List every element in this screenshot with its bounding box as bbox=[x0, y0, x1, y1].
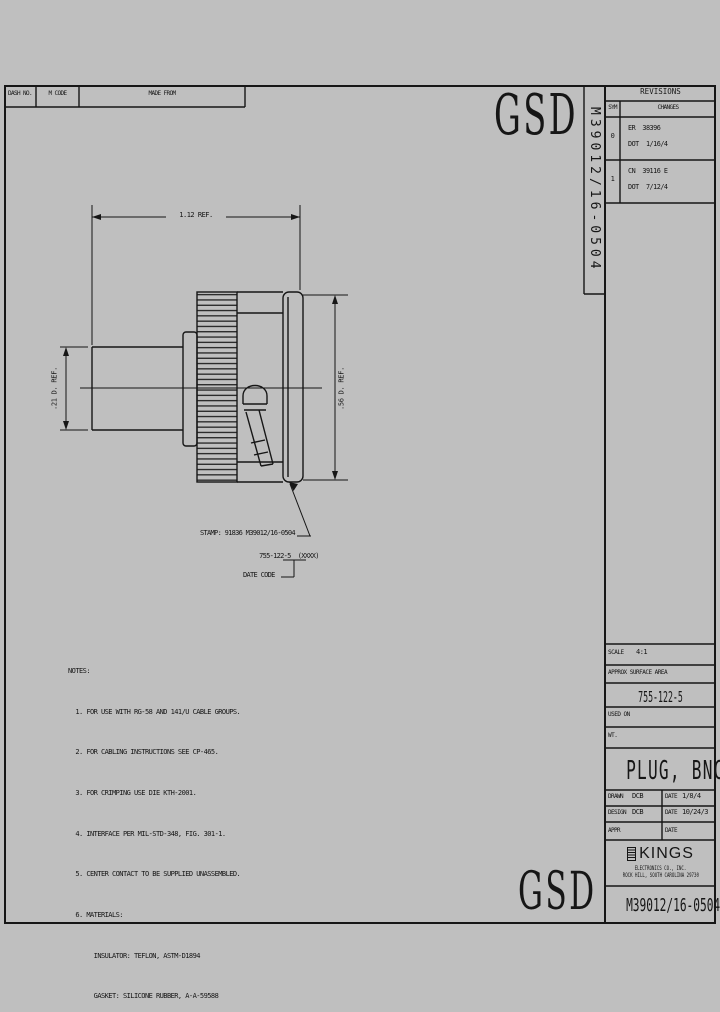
revision-row-0-sym: 0 bbox=[605, 133, 620, 141]
used-on-label: USED ON bbox=[608, 712, 630, 719]
company-row: KINGS bbox=[605, 845, 716, 863]
note-line: 2. FOR CABLING INSTRUCTIONS SEE CP-465. bbox=[68, 746, 273, 760]
design-by: DCB bbox=[632, 809, 643, 817]
dash-no-header-cell: DASH NO. bbox=[4, 91, 36, 98]
drawn-by: DCB bbox=[632, 793, 643, 801]
gsd-watermark-bottom: GSD bbox=[518, 864, 597, 921]
dim-cable-dia-label: .21 D. REF. bbox=[52, 351, 63, 427]
part-ref-number: 755-122-5 bbox=[630, 689, 691, 706]
gsd-watermark-top: GSD bbox=[494, 85, 578, 147]
drawing-sheet: DASH NO. M CODE MADE FROM GSD GSD M39012… bbox=[0, 0, 720, 1012]
drawn-date: 1/8/4 bbox=[682, 793, 701, 801]
date-code-label: DATE CODE bbox=[243, 572, 275, 580]
note-line: 4. INTERFACE PER MIL-STD-348, FIG. 301-1… bbox=[68, 828, 273, 842]
revisions-sym-header: SYM bbox=[605, 105, 620, 112]
stamp-text-line2: 755-122-5(XXXX) bbox=[245, 545, 319, 568]
note-line: NOTES: bbox=[68, 665, 273, 679]
notes-block: NOTES: 1. FOR USE WITH RG-58 AND 141/U C… bbox=[68, 638, 273, 1012]
kings-logo-icon bbox=[627, 847, 636, 861]
appr-date-label: DATE bbox=[665, 828, 677, 835]
part-number-sidebar: M39012/16-0504 bbox=[583, 90, 605, 290]
company-name: KINGS bbox=[639, 845, 694, 863]
design-date: 10/24/3 bbox=[682, 809, 708, 817]
note-line: 3. FOR CRIMPING USE DIE KTH-2001. bbox=[68, 787, 273, 801]
note-line: INSULATOR: TEFLON, ASTM-D1894 bbox=[68, 950, 273, 964]
surface-area-label: APPROX SURFACE AREA bbox=[608, 670, 667, 677]
weight-label: WT. bbox=[608, 733, 617, 740]
dim-length-label: 1.12 REF. bbox=[161, 212, 231, 220]
scale-value: 4:1 bbox=[636, 649, 647, 657]
note-line: 5. CENTER CONTACT TO BE SUPPLIED UNASSEM… bbox=[68, 868, 273, 882]
revision-row-1-change-line2: DOT 7/12/4 bbox=[628, 184, 668, 191]
stamp-text-line1: STAMP: 91836 M39012/16-0504 bbox=[200, 530, 295, 538]
revision-row-1-sym: 1 bbox=[605, 176, 620, 184]
note-line: GASKET: SILICONE RUBBER, A-A-59588 bbox=[68, 990, 273, 1004]
drawing-number: M39012/16-0504 bbox=[626, 896, 695, 916]
revision-row-0-change-line2: DOT 1/16/4 bbox=[628, 141, 668, 148]
dim-body-dia-label: .56 D. REF. bbox=[339, 351, 350, 427]
stamp-date-code-value: (XXXX) bbox=[298, 552, 319, 560]
m-code-header-cell: M CODE bbox=[36, 91, 79, 98]
note-line: 6. MATERIALS: bbox=[68, 909, 273, 923]
design-label: DESIGN bbox=[608, 810, 626, 817]
drawn-label: DRAWN bbox=[608, 794, 623, 801]
revision-row-0-change-line1: ER 38396 bbox=[628, 125, 660, 132]
drawn-date-label: DATE bbox=[665, 794, 677, 801]
scale-label: SCALE bbox=[608, 650, 624, 657]
revisions-changes-header: CHANGES bbox=[620, 105, 716, 112]
revisions-title: REVISIONS bbox=[605, 88, 716, 96]
revision-row-1-change-line1: CN 39116 E bbox=[628, 168, 668, 175]
design-date-label: DATE bbox=[665, 810, 677, 817]
made-from-header-cell: MADE FROM bbox=[79, 91, 245, 98]
drawing-title: PLUG, BNC bbox=[626, 757, 695, 786]
note-line: 1. FOR USE WITH RG-58 AND 141/U CABLE GR… bbox=[68, 706, 273, 720]
stamp-part-number: 755-122-5 bbox=[259, 552, 291, 560]
appr-label: APPR bbox=[608, 828, 620, 835]
company-address-line2: ROCK HILL, SOUTH CAROLINA 29730 bbox=[623, 873, 698, 880]
